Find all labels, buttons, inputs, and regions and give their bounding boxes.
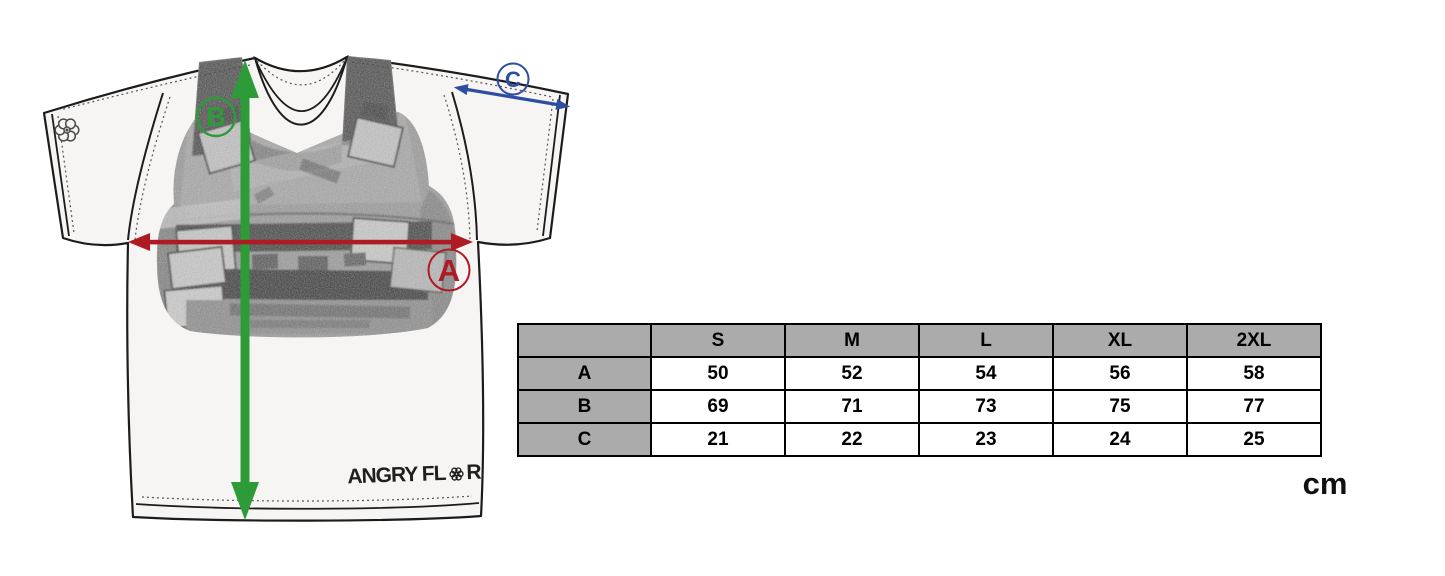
table-row: A 50 52 54 56 58 xyxy=(518,357,1321,390)
brand-text-suffix: R xyxy=(466,461,481,485)
unit-label: cm xyxy=(1290,466,1360,502)
measure-row-label: A xyxy=(518,357,651,390)
size-cell: 52 xyxy=(785,357,919,390)
measure-row-label: C xyxy=(518,423,651,456)
brand-logo: ANGRY FLR xyxy=(344,460,485,491)
size-cell: 69 xyxy=(651,390,785,423)
size-cell: 58 xyxy=(1187,357,1321,390)
tshirt-diagram: B A C xyxy=(0,0,620,576)
table-row: B 69 71 73 75 77 xyxy=(518,390,1321,423)
size-column-header: XL xyxy=(1053,324,1187,357)
size-guide-canvas: B A C ANGRY FLR S M L XL 2XL A 50 52 54 … xyxy=(0,0,1445,576)
size-cell: 75 xyxy=(1053,390,1187,423)
table-header-row: S M L XL 2XL xyxy=(518,324,1321,357)
size-cell: 54 xyxy=(919,357,1053,390)
measure-row-label: B xyxy=(518,390,651,423)
size-cell: 23 xyxy=(919,423,1053,456)
measure-label-b: B xyxy=(206,102,226,132)
size-cell: 25 xyxy=(1187,423,1321,456)
size-cell: 24 xyxy=(1053,423,1187,456)
flower-icon xyxy=(447,465,465,483)
size-cell: 73 xyxy=(919,390,1053,423)
size-column-header: 2XL xyxy=(1187,324,1321,357)
size-cell: 21 xyxy=(651,423,785,456)
size-cell: 22 xyxy=(785,423,919,456)
flower-icon xyxy=(55,119,79,141)
size-cell: 56 xyxy=(1053,357,1187,390)
measure-label-c: C xyxy=(505,67,521,92)
size-cell: 50 xyxy=(651,357,785,390)
size-cell: 71 xyxy=(785,390,919,423)
size-column-header: M xyxy=(785,324,919,357)
brand-text-prefix: ANGRY FL xyxy=(347,462,446,489)
size-chart-table: S M L XL 2XL A 50 52 54 56 58 B 69 71 73… xyxy=(517,323,1322,457)
table-row: C 21 22 23 24 25 xyxy=(518,423,1321,456)
size-column-header: S xyxy=(651,324,785,357)
corner-cell xyxy=(518,324,651,357)
size-cell: 77 xyxy=(1187,390,1321,423)
measure-label-a: A xyxy=(438,253,460,288)
size-column-header: L xyxy=(919,324,1053,357)
